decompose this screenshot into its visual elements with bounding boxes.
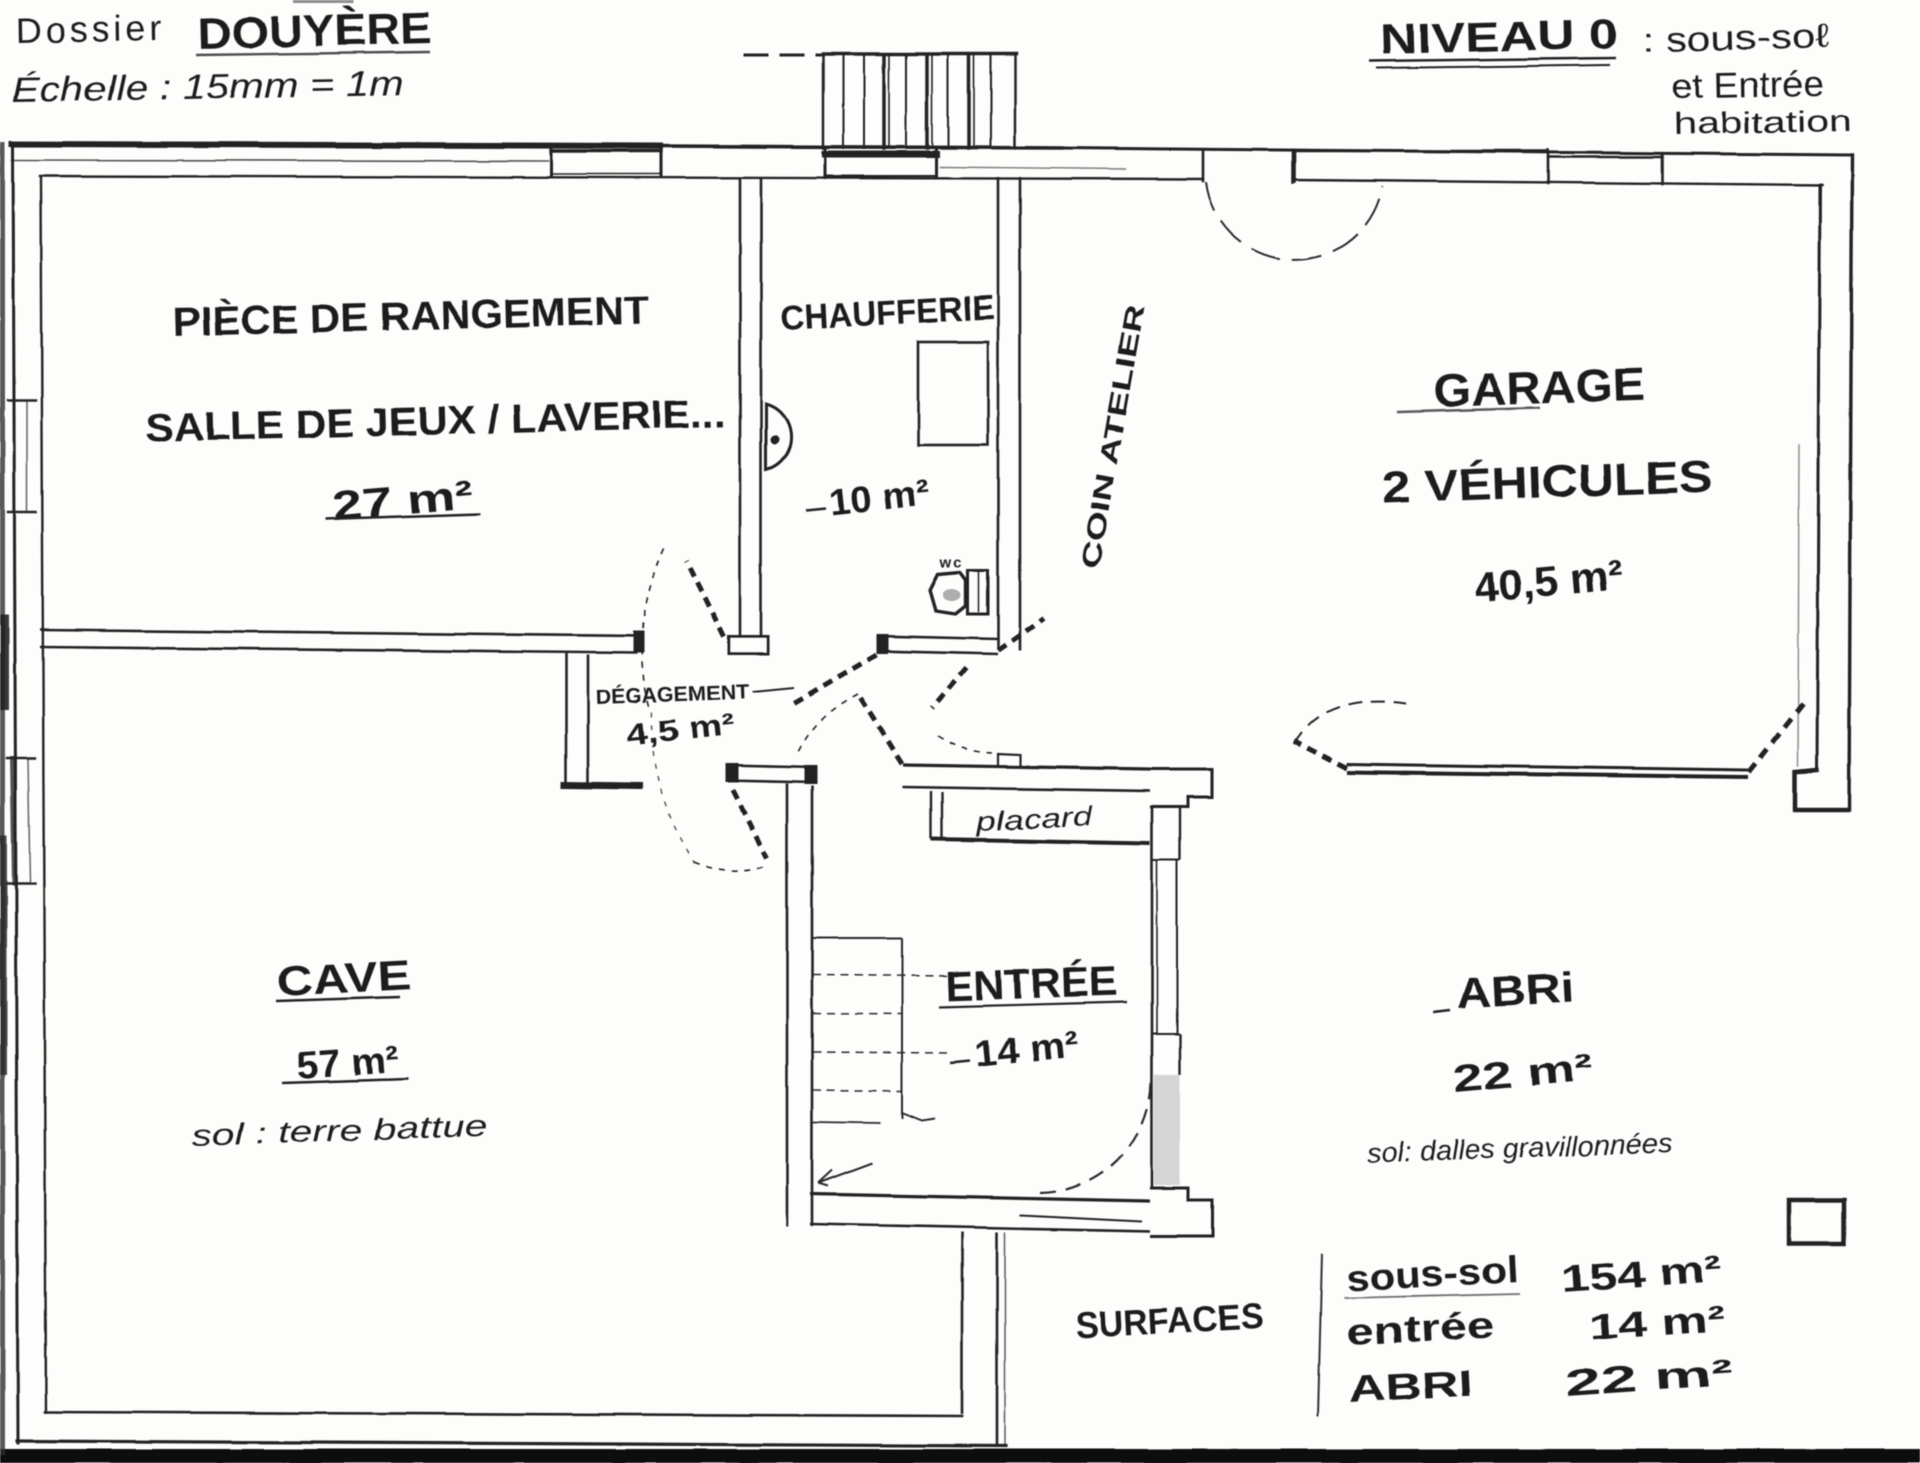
svg-text:habitation: habitation (1674, 105, 1853, 141)
svg-text:placard: placard (974, 801, 1094, 837)
svg-text:ABRI: ABRI (1347, 1363, 1473, 1410)
svg-text:et Entrée: et Entrée (1671, 64, 1824, 106)
svg-text:ABRi: ABRi (1455, 964, 1575, 1017)
svg-text:NIVEAU 0: NIVEAU 0 (1379, 10, 1618, 63)
svg-text:: sous-soℓ: : sous-soℓ (1641, 17, 1830, 60)
svg-text:DOUYÈRE: DOUYÈRE (197, 3, 432, 59)
svg-text:entrée: entrée (1345, 1304, 1495, 1353)
svg-text:wc: wc (939, 554, 964, 571)
svg-text:Échelle : 15mm = 1m: Échelle : 15mm = 1m (11, 64, 404, 110)
